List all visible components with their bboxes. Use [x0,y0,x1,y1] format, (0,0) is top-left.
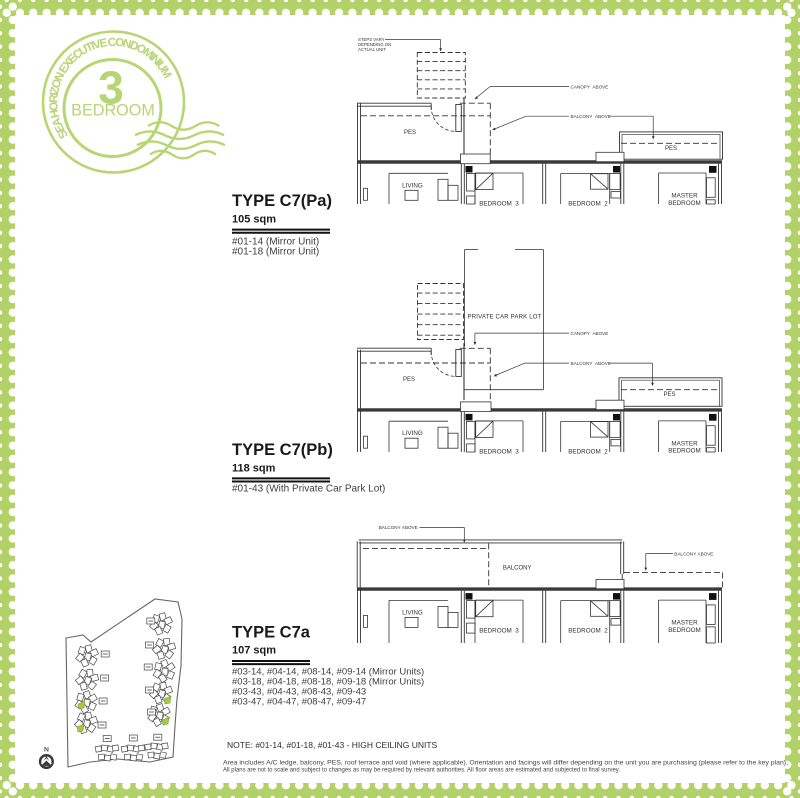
svg-text:MASTER: MASTER [671,193,698,200]
svg-text:BALCONY ABOVE: BALCONY ABOVE [571,114,611,119]
svg-text:BEDROOM: BEDROOM [71,102,155,120]
svg-text:NOTE: #01-14, #01-18, #01-43 -: NOTE: #01-14, #01-18, #01-43 - HIGH CEIL… [227,740,438,750]
svg-text:ACTUAL UNIT: ACTUAL UNIT [358,47,386,52]
svg-text:PES: PES [403,377,415,383]
svg-text:BEDROOM: BEDROOM [668,627,701,634]
svg-text:N: N [44,747,49,754]
svg-text:CANOPY ABOVE: CANOPY ABOVE [571,331,609,336]
svg-text:Area includes A/C ledge, balco: Area includes A/C ledge, balcony, PES, r… [223,760,788,767]
svg-text:PRIVATE CAR PARK LOT: PRIVATE CAR PARK LOT [468,315,542,321]
svg-text:BEDROOM: BEDROOM [668,200,701,207]
svg-text:BEDROOM 2: BEDROOM 2 [568,448,608,455]
svg-text:BEDROOM 3: BEDROOM 3 [479,448,519,455]
svg-text:LIVING: LIVING [402,182,423,189]
svg-text:All plans are not to scale and: All plans are not to scale and subject t… [223,767,620,774]
svg-text:BALCONY ABOVE: BALCONY ABOVE [571,361,611,366]
svg-text:PES: PES [404,130,416,136]
svg-text:TYPE C7(Pa): TYPE C7(Pa) [232,192,332,210]
svg-text:#03-47, #04-47, #08-47, #09-47: #03-47, #04-47, #08-47, #09-47 [232,697,366,708]
svg-text:PES: PES [665,146,677,152]
svg-text:BALCONY: BALCONY [503,566,532,572]
svg-text:107 sqm: 107 sqm [232,645,276,657]
svg-text:MASTER: MASTER [671,440,698,447]
svg-text:BEDROOM 2: BEDROOM 2 [568,628,608,635]
svg-text:BEDROOM 3: BEDROOM 3 [479,628,519,635]
svg-text:BEDROOM 2: BEDROOM 2 [568,201,608,208]
svg-text:LIVING: LIVING [402,609,423,616]
svg-text:118 sqm: 118 sqm [232,463,276,475]
svg-text:PES: PES [663,392,675,398]
svg-text:BALCONY ABOVE: BALCONY ABOVE [379,525,418,530]
svg-text:BEDROOM 3: BEDROOM 3 [479,201,519,208]
svg-text:MASTER: MASTER [671,620,698,627]
svg-text:LIVING: LIVING [402,430,423,437]
svg-text:TYPE C7a: TYPE C7a [232,624,311,642]
svg-text:#01-43 (With Private Car Park: #01-43 (With Private Car Park Lot) [232,484,385,495]
svg-text:105 sqm: 105 sqm [232,214,276,226]
svg-text:CANOPY ABOVE: CANOPY ABOVE [571,84,609,89]
svg-text:#01-18 (Mirror Unit): #01-18 (Mirror Unit) [232,247,319,258]
svg-text:BALCONY ABOVE: BALCONY ABOVE [674,551,713,556]
svg-text:TYPE C7(Pb): TYPE C7(Pb) [232,441,333,459]
svg-text:BEDROOM: BEDROOM [668,448,701,455]
